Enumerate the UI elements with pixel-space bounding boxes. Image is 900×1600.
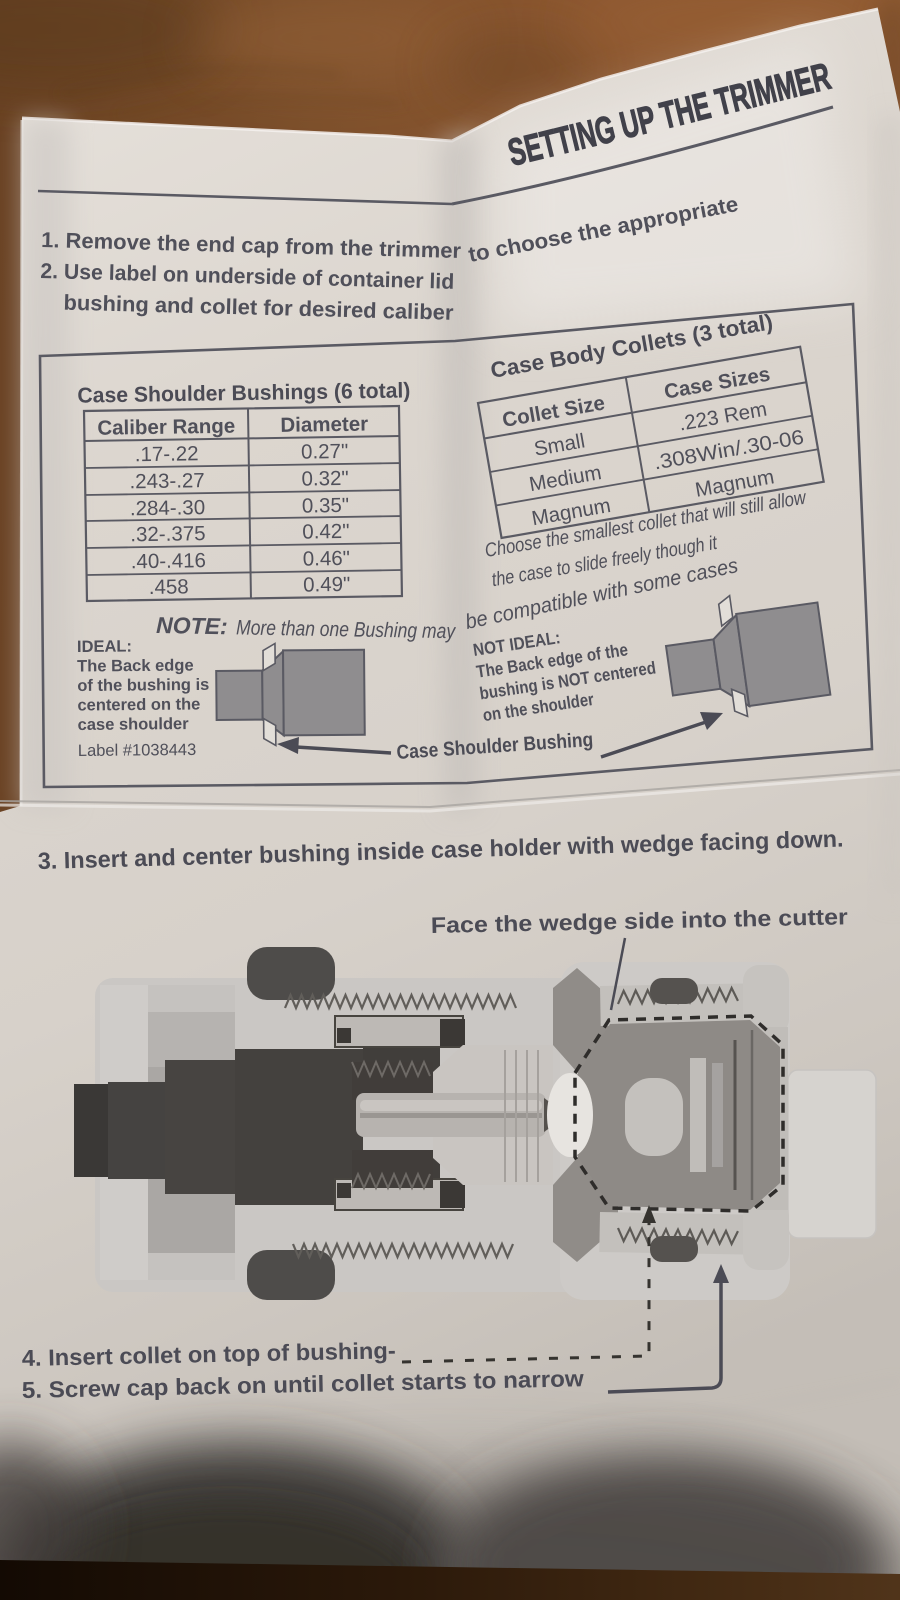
svg-text:centered on the: centered on the [77,695,200,714]
svg-text:0.35": 0.35" [302,494,350,518]
svg-text:of the bushing is: of the bushing is [77,676,209,695]
svg-text:Case Shoulder Bushings (6 tota: Case Shoulder Bushings (6 total) [77,378,410,407]
svg-text:Label #1038443: Label #1038443 [78,741,197,760]
svg-text:3. Insert and center bushing i: 3. Insert and center bushing inside case… [37,826,843,874]
svg-text:2. Use label on underside of c: 2. Use label on underside of container l… [40,259,454,294]
svg-text:5. Screw cap back on until col: 5. Screw cap back on until collet starts… [22,1365,585,1403]
svg-text:Diameter: Diameter [280,413,368,437]
svg-text:0.27": 0.27" [301,440,349,464]
svg-text:0.46": 0.46" [303,547,351,571]
svg-text:IDEAL:: IDEAL: [77,638,132,656]
svg-text:.32-.375: .32-.375 [130,522,206,546]
svg-text:.40-.416: .40-.416 [131,549,207,573]
svg-text:0.42": 0.42" [302,520,350,544]
svg-text:NOTE:: NOTE: [156,612,228,639]
svg-text:0.32": 0.32" [301,467,349,491]
svg-text:to choose the appropriate: to choose the appropriate [466,192,740,267]
svg-text:Caliber Range: Caliber Range [97,415,235,440]
svg-text:bushing and collet for desired: bushing and collet for desired caliber [63,291,454,325]
svg-text:.458: .458 [149,575,189,599]
svg-text:Medium: Medium [527,461,603,496]
svg-text:case shoulder: case shoulder [78,715,190,734]
svg-text:.17-.22: .17-.22 [135,442,199,466]
svg-text:.308Win/.30-06: .308Win/.30-06 [652,426,806,475]
svg-text:4. Insert collet on top of bus: 4. Insert collet on top of bushing- [22,1337,396,1371]
svg-text:.243-.27: .243-.27 [129,469,205,493]
svg-text:The Back edge: The Back edge [77,656,194,675]
svg-text:Face the wedge side into the c: Face the wedge side into the cutter [431,904,849,938]
svg-text:Case Shoulder Bushing: Case Shoulder Bushing [396,729,594,764]
svg-text:More than one Bushing may: More than one Bushing may [236,616,457,643]
svg-text:1. Remove the end cap from the: 1. Remove the end cap from the trimmer [41,228,462,263]
svg-text:SETTING UP THE TRIMMER: SETTING UP THE TRIMMER [504,56,835,175]
svg-text:.284-.30: .284-.30 [130,496,206,520]
svg-text:0.49": 0.49" [303,573,351,597]
